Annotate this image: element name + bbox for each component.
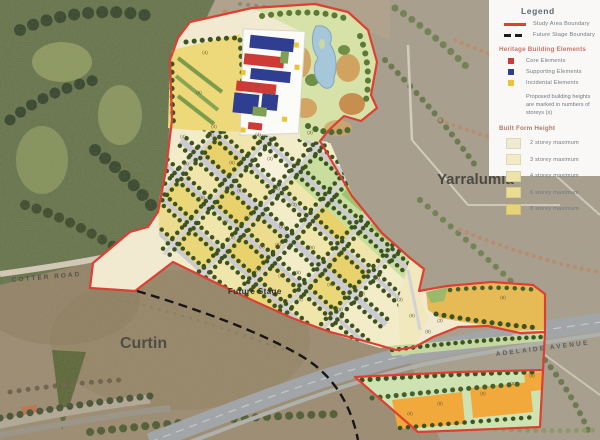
- legend-item-future-stage-boundary: Future Stage Boundary: [495, 32, 596, 38]
- block-storey-label: (3): [291, 202, 297, 207]
- block-storey-label: (3): [397, 297, 403, 302]
- block-storey-label: (6): [199, 195, 205, 200]
- block-storey-label: (6): [374, 275, 380, 280]
- label-future-stage: Future Stage: [228, 287, 282, 296]
- block-storey-label: (4): [211, 124, 217, 129]
- legend-panel: Legend Study Area Boundary Future Stage …: [489, 0, 600, 176]
- block-storey-label: (6): [309, 245, 315, 250]
- core-swatch: [508, 58, 514, 64]
- incidental-swatch: [508, 80, 514, 86]
- block-storey-label: (8): [229, 235, 235, 240]
- block-storey-label: (6): [529, 373, 535, 378]
- legend-item-supporting-elements: Supporting Elements: [495, 69, 596, 75]
- masterplan-map-page: (4)(6)(4)(4)(6)(4)(3)(6)(6)(3)(6)(8)(8)(…: [0, 0, 600, 440]
- block-storey-label: (6): [183, 161, 189, 166]
- block-storey-label: (4): [255, 132, 261, 137]
- block-storey-label: (6): [222, 219, 228, 224]
- storey-2-swatch: [506, 138, 521, 149]
- block-storey-label: (6): [196, 90, 202, 95]
- block-storey-label: (6): [500, 295, 506, 300]
- block-storey-label: (8): [425, 329, 431, 334]
- storey-6-swatch: [506, 187, 521, 198]
- legend-item-4-storey: 4 storey maximum: [495, 171, 596, 182]
- block-storey-label: (3): [267, 156, 273, 161]
- block-storey-label: (6): [278, 273, 284, 278]
- block-storey-label: (6): [407, 411, 413, 416]
- storey-8-swatch: [506, 204, 521, 215]
- block-storey-label: (4): [202, 50, 208, 55]
- block-storey-label: (8): [437, 401, 443, 406]
- block-storey-label: (8): [279, 224, 285, 229]
- legend-item-3-storey: 3 storey maximum: [495, 154, 596, 165]
- storey-4-swatch: [506, 171, 521, 182]
- block-storey-label: (3): [437, 318, 443, 323]
- block-storey-label: (8): [275, 242, 281, 247]
- block-storey-label: (4): [297, 297, 303, 302]
- storey-3-swatch: [506, 154, 521, 165]
- block-storey-label: (4): [180, 134, 186, 139]
- block-storey-label: (6): [259, 244, 265, 249]
- block-storey-label: (6): [229, 160, 235, 165]
- block-storey-label: (4): [255, 267, 261, 272]
- legend-note: Proposed building heights are marked in …: [526, 93, 594, 117]
- future-boundary-swatch: [504, 34, 526, 37]
- legend-item-2-storey: 2 storey maximum: [495, 138, 596, 149]
- block-storey-label: (6): [208, 133, 214, 138]
- study-boundary-swatch: [504, 23, 526, 26]
- block-storey-label: (8): [359, 291, 365, 296]
- built-form-height-heading: Built Form Height: [499, 125, 596, 132]
- pond-island: [319, 39, 325, 49]
- block-storey-label: (6): [480, 391, 486, 396]
- legend-item-core-elements: Core Elements: [495, 58, 596, 64]
- label-curtin: Curtin: [120, 335, 167, 352]
- block-storey-label: (8): [237, 188, 243, 193]
- legend-item-study-area-boundary: Study Area Boundary: [495, 21, 596, 27]
- northwest-blocks: [168, 34, 246, 132]
- block-storey-label: (6): [327, 282, 333, 287]
- legend-item-6-storey: 6 storey maximum: [495, 187, 596, 198]
- block-storey-label: (3): [307, 130, 313, 135]
- block-storey-label: (6): [409, 313, 415, 318]
- block-storey-label: (6): [337, 307, 343, 312]
- block-storey-label: (8): [274, 186, 280, 191]
- supporting-swatch: [508, 69, 514, 75]
- heritage-elements-heading: Heritage Building Elements: [499, 46, 596, 53]
- legend-item-incidental-elements: Incidental Elements: [495, 80, 596, 86]
- block-storey-label: (8): [295, 270, 301, 275]
- legend-item-8-storey: 8 storey maximum: [495, 204, 596, 215]
- block-storey-label: (8): [510, 381, 516, 386]
- legend-title: Legend: [521, 6, 596, 16]
- block-storey-label: (6): [244, 215, 250, 220]
